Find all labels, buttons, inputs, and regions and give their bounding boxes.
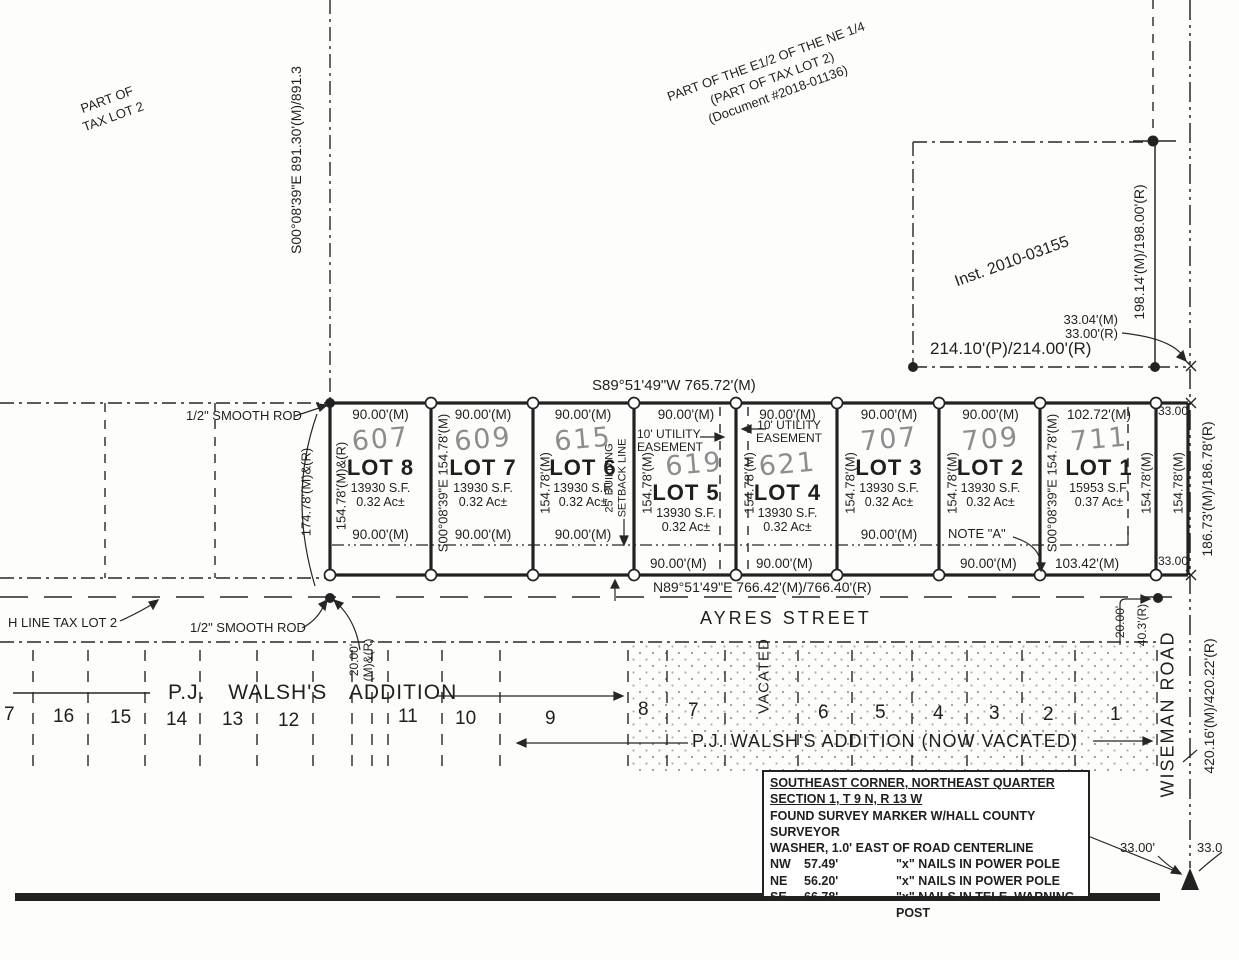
- lot-5-width-bottom: 90.00'(M): [650, 557, 707, 572]
- note-row-se: SE 66.78' "x" NAILS IN TELE. WARNING POS…: [770, 889, 1082, 922]
- south-line-dimension: N89°51'49"E 766.42'(M)/766.40'(R): [653, 580, 872, 595]
- note-line-4: WASHER, 1.0' EAST OF ROAD CENTERLINE: [770, 840, 1082, 856]
- lot-7-cell: 90.00'(M) 609 LOT 7 13930 S.F. 0.32 Ac± …: [436, 403, 530, 542]
- lot-1-area-sf: 15953 S.F.: [1046, 481, 1152, 495]
- lot-7-area-ac: 0.32 Ac±: [436, 495, 530, 509]
- lot-5-area-ac: 0.32 Ac±: [640, 520, 732, 534]
- wiseman-offset-40: 40.3'(R): [1136, 604, 1150, 646]
- rod-bottom-label: 1/2" SMOOTH ROD: [190, 621, 306, 635]
- lot-8-area-sf: 13930 S.F.: [333, 481, 428, 495]
- lot-7-area-sf: 13930 S.F.: [436, 481, 530, 495]
- west-outer-dimension: 174.78'(M)&(R): [300, 448, 315, 536]
- walsh-lot-number: 13: [222, 710, 243, 731]
- lot-5-area-sf: 13930 S.F.: [640, 506, 732, 520]
- lot-2-width-bottom: 90.00'(M): [960, 557, 1017, 572]
- lot-2-name: LOT 2: [945, 455, 1036, 481]
- walsh-lot-number: 11: [398, 707, 418, 728]
- parcel-south-dimension: 214.10'(P)/214.00'(R): [930, 340, 1091, 359]
- h-line-label: H LINE TAX LOT 2: [8, 616, 117, 630]
- lot-5-name: LOT 5: [640, 480, 732, 506]
- walsh-lot-number: 1: [1110, 705, 1121, 726]
- walsh-lot-number: 4: [933, 704, 944, 725]
- lot-4-name: LOT 4: [742, 480, 833, 506]
- vacated-stipple-area: [628, 645, 1157, 772]
- offset-33-dimension: 33.04'(M) 33.00'(R): [1052, 313, 1118, 342]
- alley-width-dimension: 20.00' (M)&(R): [348, 639, 376, 682]
- walsh-lot-number: 15: [110, 708, 131, 729]
- walsh-lot-number: 7: [688, 701, 699, 722]
- walsh-lot-number: 7: [4, 705, 15, 726]
- lot-3-name: LOT 3: [843, 455, 935, 481]
- lot-6-width-bottom: 90.00'(M): [538, 527, 628, 542]
- note-row-ne: NE 56.20' "x" NAILS IN POWER POLE: [770, 873, 1082, 889]
- lot-8-area-ac: 0.32 Ac±: [333, 495, 428, 509]
- lot-4-area-ac: 0.32 Ac±: [742, 520, 833, 534]
- lot-4-width-top: 90.00'(M): [742, 407, 833, 422]
- east-parcel-dimension: 198.14'(M)/198.00'(R): [1131, 184, 1147, 319]
- strip-top-33: 33.00': [1158, 405, 1190, 418]
- east-lot-line-dimension: 186.73'(M)/186.78'(R): [1199, 421, 1215, 556]
- lot-6-area-sf: 13930 S.F.: [538, 481, 628, 495]
- walsh-lot-number: 10: [455, 709, 476, 730]
- lot-1-name: LOT 1: [1046, 455, 1152, 481]
- wiseman-road-label: WISEMAN ROAD: [1158, 630, 1179, 797]
- lot-4-address: 621: [741, 445, 834, 484]
- lot-2-area-ac: 0.32 Ac±: [945, 495, 1036, 509]
- lot-8-width-top: 90.00'(M): [333, 407, 428, 422]
- lot-4-width-bottom: 90.00'(M): [756, 557, 813, 572]
- lot-7-width-top: 90.00'(M): [436, 407, 530, 422]
- wiseman-offset-20: 20.00': [1114, 606, 1128, 638]
- note-row-nw: NW 57.49' "x" NAILS IN POWER POLE: [770, 856, 1082, 872]
- lot-3-address: 707: [842, 420, 936, 459]
- walsh-lot-number: 9: [545, 709, 556, 730]
- vacated-label: VACATED: [755, 638, 772, 714]
- lot-3-width-top: 90.00'(M): [843, 407, 935, 422]
- lot-6-name: LOT 6: [538, 455, 628, 481]
- lot-3-area-ac: 0.32 Ac±: [843, 495, 935, 509]
- lot-2-width-top: 90.00'(M): [945, 407, 1036, 422]
- lot-5-width-top: 90.00'(M): [640, 407, 732, 422]
- lot-3-width-bottom: 90.00'(M): [843, 527, 935, 542]
- lot-6-width-top: 90.00'(M): [538, 407, 628, 422]
- walsh-lot-number: 6: [818, 703, 829, 724]
- walsh-addition-heading: P.J. WALSH'S ADDITION: [168, 681, 457, 704]
- note-line-3: FOUND SURVEY MARKER W/HALL COUNTY SURVEY…: [770, 808, 1082, 841]
- lot-7-name: LOT 7: [436, 455, 530, 481]
- walsh-lot-number: 14: [166, 710, 187, 731]
- lot-7-address: 609: [435, 420, 531, 459]
- walsh-lot-number: 5: [875, 703, 886, 724]
- lot-7-width-bottom: 90.00'(M): [436, 527, 530, 542]
- walsh-lot-number: 12: [278, 711, 299, 732]
- walsh-lot-number: 16: [53, 707, 74, 728]
- lot-8-address: 607: [332, 420, 429, 459]
- lot-5-address: 619: [655, 446, 733, 484]
- lot-1-width-bottom: 103.42'(M): [1055, 557, 1119, 572]
- lot-6-cell: 90.00'(M) 615 LOT 6 13930 S.F. 0.32 Ac± …: [538, 403, 628, 542]
- lot-4-area-sf: 13930 S.F.: [742, 506, 833, 520]
- plat-map: PART OF TAX LOT 2 PART OF THE E1/2 OF TH…: [0, 0, 1239, 960]
- north-line-dimension: S89°51'49"W 765.72'(M): [592, 378, 756, 395]
- ayres-street-label: AYRES STREET: [700, 609, 872, 629]
- lot-2-cell: 90.00'(M) 709 LOT 2 13930 S.F. 0.32 Ac±: [945, 403, 1036, 509]
- lot-3-cell: 90.00'(M) 707 LOT 3 13930 S.F. 0.32 Ac± …: [843, 403, 935, 542]
- strip-side-dimension-2: 154.78'(M): [1172, 452, 1187, 514]
- rod-top-label: 1/2" SMOOTH ROD: [186, 409, 302, 423]
- walsh-lot-number: 3: [989, 704, 1000, 725]
- road-33-left: 33.00': [1120, 841, 1155, 855]
- lot-8-name: LOT 8: [333, 455, 428, 481]
- walsh-vacated-heading: P.J. WALSH'S ADDITION (NOW VACATED): [692, 732, 1078, 752]
- lot-1-address: 711: [1045, 419, 1153, 459]
- road-33-right: 33.0: [1197, 841, 1222, 855]
- walsh-lot-number: 8: [638, 700, 649, 721]
- lot-2-area-sf: 13930 S.F.: [945, 481, 1036, 495]
- note-line-1: SOUTHEAST CORNER, NORTHEAST QUARTER: [770, 775, 1082, 791]
- walsh-lot-number: 2: [1043, 705, 1054, 726]
- lot-8-cell: 90.00'(M) 607 LOT 8 13930 S.F. 0.32 Ac± …: [333, 403, 428, 542]
- section-corner-triangle: [1181, 868, 1199, 890]
- lot-1-area-ac: 0.37 Ac±: [1046, 495, 1152, 509]
- lot-2-address: 709: [944, 420, 1037, 459]
- lot-4-cell: 90.00'(M) 621 LOT 4 13930 S.F. 0.32 Ac±: [742, 403, 833, 534]
- survey-note-box: SOUTHEAST CORNER, NORTHEAST QUARTER SECT…: [762, 770, 1090, 898]
- lot-5-cell: 90.00'(M) 619 LOT 5 13930 S.F. 0.32 Ac±: [640, 403, 732, 534]
- lot-3-area-sf: 13930 S.F.: [843, 481, 935, 495]
- lot-8-width-bottom: 90.00'(M): [333, 527, 428, 542]
- wiseman-length-dimension: 420.16'(M)/420.22'(R): [1201, 638, 1217, 773]
- note-a-label: NOTE "A": [948, 527, 1006, 541]
- lot-6-address: 615: [537, 420, 629, 459]
- lot-1-cell: 102.72'(M) 711 LOT 1 15953 S.F. 0.37 Ac±: [1046, 403, 1152, 509]
- lot-6-area-ac: 0.32 Ac±: [538, 495, 628, 509]
- strip-bottom-33: 33.00': [1158, 555, 1190, 568]
- west-line-dimension: S00°08'39"E 891.30'(M)/891.3: [288, 66, 304, 254]
- note-line-2: SECTION 1, T 9 N, R 13 W: [770, 791, 1082, 807]
